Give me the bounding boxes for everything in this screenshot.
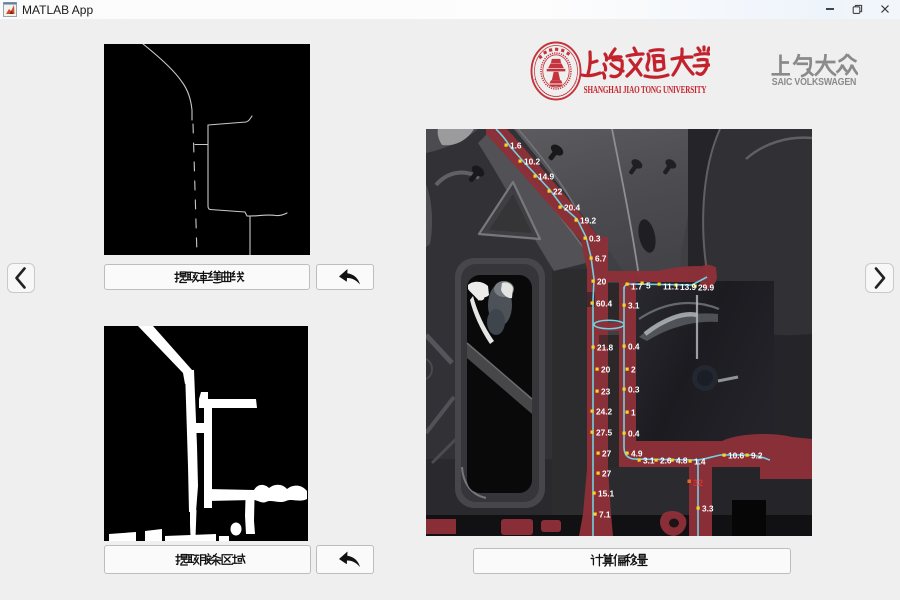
svg-text:10.6: 10.6 [728,451,745,461]
svg-text:4.8: 4.8 [676,456,688,466]
svg-text:20: 20 [597,277,607,287]
svg-text:3.3: 3.3 [702,504,714,514]
svg-text:5: 5 [646,281,651,291]
svg-text:13.9: 13.9 [680,282,697,292]
svg-text:29.9: 29.9 [698,283,715,293]
svg-text:15.1: 15.1 [598,489,615,499]
svg-text:7.1: 7.1 [599,510,611,520]
svg-text:11.1: 11.1 [663,282,679,292]
svg-text:2: 2 [631,365,636,375]
svg-text:0.4: 0.4 [628,342,640,352]
svg-text:0.3: 0.3 [589,234,601,244]
svg-text:21.8: 21.8 [597,343,614,353]
svg-text:27: 27 [602,449,612,459]
svg-text:3.1: 3.1 [643,456,655,466]
svg-text:22: 22 [553,187,563,197]
svg-text:3.1: 3.1 [628,301,640,311]
svg-text:10.2: 10.2 [524,157,541,167]
svg-text:9.2: 9.2 [751,451,763,461]
svg-text:24.2: 24.2 [596,407,613,417]
svg-text:0.4: 0.4 [628,429,640,439]
svg-text:20: 20 [601,365,611,375]
svg-text:1.6: 1.6 [510,141,522,151]
svg-text:20.4: 20.4 [564,203,581,213]
svg-text:6.7: 6.7 [595,254,607,264]
svg-text:27: 27 [602,469,612,479]
svg-text:1.7: 1.7 [631,282,643,292]
svg-text:4.9: 4.9 [631,449,643,459]
svg-text:0.3: 0.3 [628,385,640,395]
svg-text:1: 1 [631,408,636,418]
svg-text:32: 32 [693,478,703,488]
svg-text:14.9: 14.9 [538,172,555,182]
svg-text:1.4: 1.4 [694,457,706,467]
svg-text:19.2: 19.2 [580,216,597,226]
svg-text:27.5: 27.5 [596,428,613,438]
svg-text:2.6: 2.6 [660,456,672,466]
svg-text:60.4: 60.4 [596,299,613,309]
svg-text:23: 23 [601,387,611,397]
